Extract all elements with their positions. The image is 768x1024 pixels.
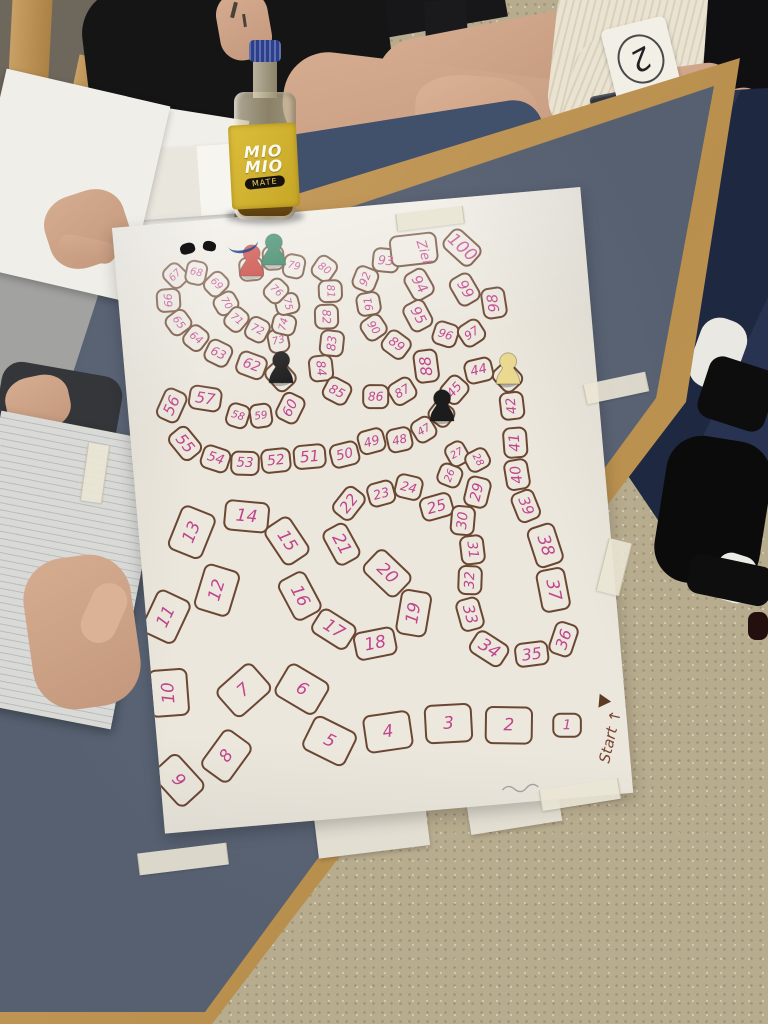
cell-number-19: 19	[402, 601, 425, 626]
cell-number-30: 30	[454, 511, 471, 530]
cell-number-86: 86	[368, 390, 384, 404]
cell-number-10: 10	[158, 681, 180, 704]
cell-number-3: 3	[443, 713, 455, 734]
cell-number-32: 32	[462, 571, 479, 589]
cell-number-93: 93	[377, 252, 394, 269]
cell-number-83: 83	[324, 335, 340, 352]
cell-number-14: 14	[235, 505, 258, 527]
cell-number-84: 84	[313, 360, 329, 377]
cell-number-1: 1	[563, 717, 572, 733]
cell-number-53: 53	[236, 456, 253, 471]
pencil-squiggle	[502, 784, 538, 793]
cell-number-2: 2	[503, 715, 514, 735]
cell-number-37: 37	[541, 577, 565, 602]
start-arrow	[593, 691, 611, 708]
cell-number-88: 88	[416, 355, 436, 377]
cell-number-66: 66	[162, 293, 176, 308]
cell-number-52: 52	[266, 452, 285, 470]
cell-number-42: 42	[504, 397, 521, 415]
cell-number-41: 41	[507, 433, 524, 452]
cell-number-98: 98	[485, 293, 504, 314]
bottle-label: MIO MIO MATE	[228, 122, 300, 209]
cell-number-51: 51	[299, 447, 320, 467]
cell-number-31: 31	[463, 540, 481, 559]
photo-stage: 2 12345678910111213141516171819202122232…	[0, 0, 768, 1024]
cell-number-40: 40	[508, 464, 527, 485]
cell-number-82: 82	[319, 309, 333, 324]
cell-number-57: 57	[194, 388, 216, 409]
bottle-brand-line2: MIO	[244, 158, 283, 175]
mio-mio-bottle: MIO MIO MATE	[222, 40, 308, 228]
shoe-tip	[748, 612, 768, 640]
bottle-badge: MATE	[245, 175, 286, 190]
start-label: Start ↑	[595, 708, 625, 765]
cell-number-81: 81	[324, 284, 337, 298]
bottle-neck	[253, 56, 277, 98]
bottle-cap	[249, 40, 281, 62]
cell-number-18: 18	[363, 632, 388, 656]
game-board-svg: 1234567891011121314151617181920212223242…	[112, 187, 633, 834]
cell-number-91: 91	[361, 296, 376, 312]
cell-number-35: 35	[521, 643, 543, 664]
cell-number-59: 59	[254, 409, 269, 423]
game-board-poster: 1234567891011121314151617181920212223242…	[112, 187, 633, 834]
